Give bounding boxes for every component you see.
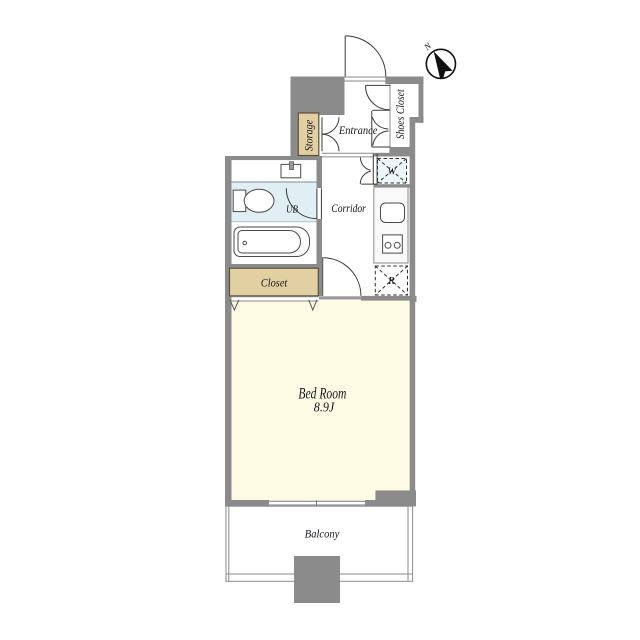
svg-text:Storage: Storage <box>303 120 315 152</box>
svg-text:8.9J: 8.9J <box>314 400 335 415</box>
svg-text:Closet: Closet <box>261 278 288 290</box>
svg-text:Corridor: Corridor <box>331 201 366 215</box>
svg-text:Balcony: Balcony <box>305 527 340 541</box>
svg-text:R: R <box>387 276 395 287</box>
svg-text:Shoes Closet: Shoes Closet <box>395 89 407 140</box>
svg-text:Entrance: Entrance <box>338 125 377 137</box>
svg-text:UB: UB <box>286 205 298 216</box>
